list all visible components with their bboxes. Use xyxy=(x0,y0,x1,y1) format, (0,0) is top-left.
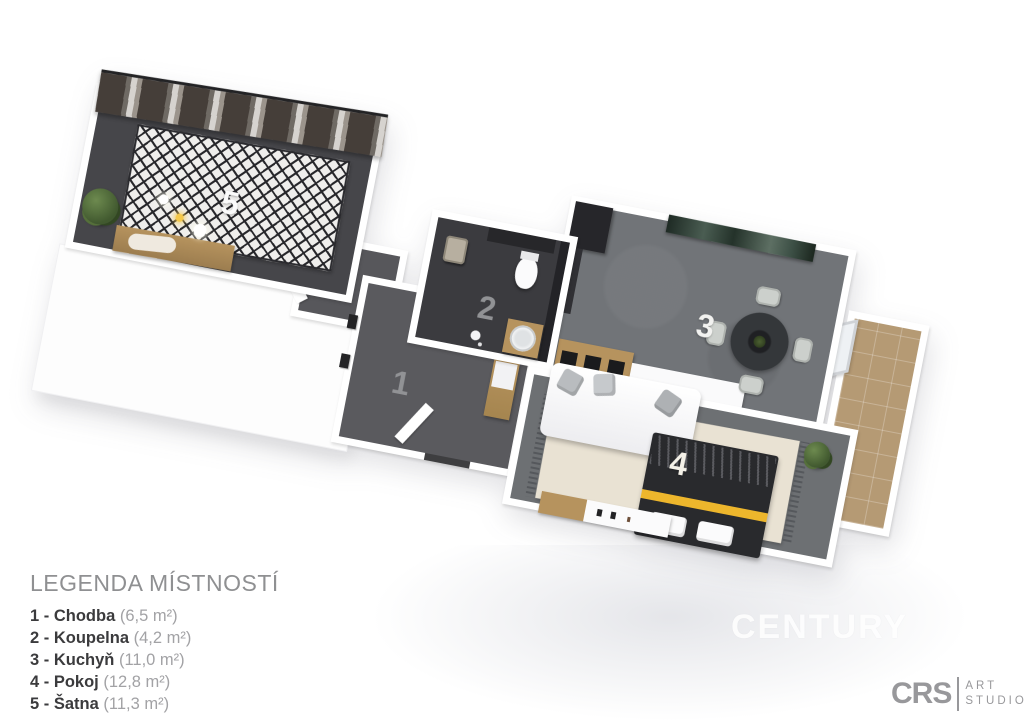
shoe-bench xyxy=(483,358,520,420)
pillow-icon xyxy=(593,374,615,396)
room-number-2: 2 xyxy=(475,291,499,326)
floor-plan-3d: 5 1 3 xyxy=(12,70,968,615)
legend-item-label: 4 - Pokoj xyxy=(30,673,99,691)
sink-vanity-icon xyxy=(502,318,544,358)
logo-line-art: ART xyxy=(965,679,1024,694)
legend-item-label: 2 - Koupelna xyxy=(30,629,129,647)
legend-item-area: (11,0 m²) xyxy=(119,651,185,669)
entrance-doorway xyxy=(424,453,470,469)
legend-title: LEGENDA MÍSTNOSTÍ xyxy=(30,570,279,597)
crs-art-studio-logo: CRS ART STUDIO xyxy=(891,677,1024,711)
legend-item-label: 3 - Kuchyň xyxy=(30,651,114,669)
picture-frame-icon xyxy=(347,314,359,329)
legend-item: 4 - Pokoj (12,8 m²) xyxy=(30,673,279,692)
legend-item-area: (11,3 m²) xyxy=(103,695,169,713)
wall-painting xyxy=(666,214,817,262)
room-number-1: 1 xyxy=(389,366,413,401)
legend-item: 3 - Kuchyň (11,0 m²) xyxy=(30,651,279,670)
dining-chair-icon xyxy=(755,285,782,307)
legend-item-area: (6,5 m²) xyxy=(120,607,178,625)
shower-icon xyxy=(470,330,482,342)
pillow-icon xyxy=(555,367,585,397)
legend: LEGENDA MÍSTNOSTÍ 1 - Chodba (6,5 m²) 2 … xyxy=(30,570,279,724)
watermark: CENTURY xyxy=(731,608,908,647)
plant-icon xyxy=(79,185,121,227)
logo-line-studio: STUDIO xyxy=(965,694,1024,709)
dining-table xyxy=(726,308,794,376)
logo-divider xyxy=(957,677,959,711)
legend-item-area: (4,2 m²) xyxy=(134,629,192,647)
logo-brand: CRS xyxy=(891,677,951,711)
open-door-icon xyxy=(394,403,433,444)
toilet-icon xyxy=(513,255,541,291)
picture-frame-icon xyxy=(339,353,351,368)
legend-item-label: 5 - Šatna xyxy=(30,695,99,713)
room-koupelna: 2 xyxy=(407,209,578,371)
legend-item-area: (12,8 m²) xyxy=(103,673,170,691)
dining-chair-icon xyxy=(792,337,814,364)
legend-item: 2 - Koupelna (4,2 m²) xyxy=(30,629,279,648)
legend-item: 1 - Chodba (6,5 m²) xyxy=(30,607,279,626)
legend-item-label: 1 - Chodba xyxy=(30,607,115,625)
laundry-basket-icon xyxy=(442,235,469,265)
floorplan-page: CENTURY 5 1 xyxy=(0,0,1024,724)
legend-item: 5 - Šatna (11,3 m²) xyxy=(30,695,279,714)
logo-wordmark: ART STUDIO xyxy=(965,679,1024,709)
pillow-icon xyxy=(696,520,735,547)
pillow-icon xyxy=(653,388,684,419)
